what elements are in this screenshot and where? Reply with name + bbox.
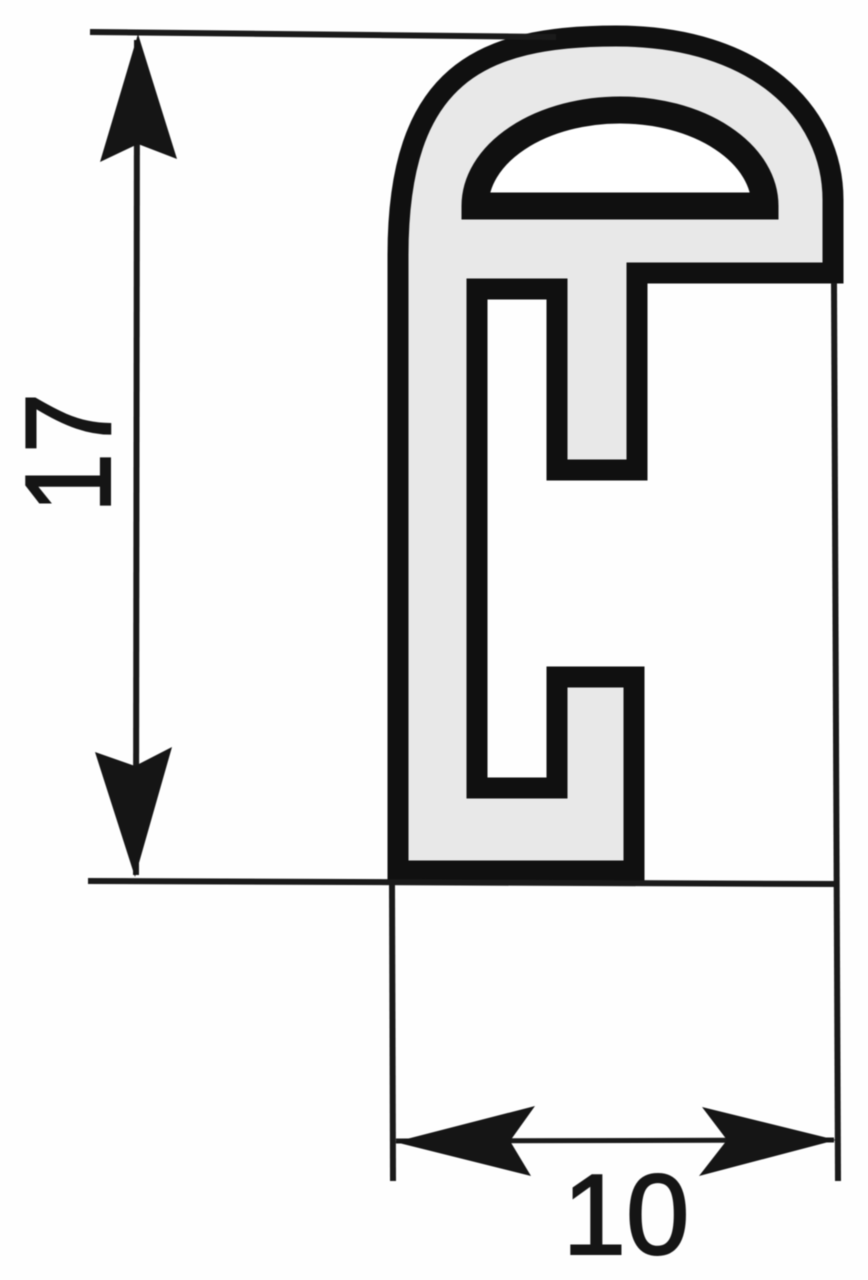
- svg-text:17: 17: [0, 393, 136, 513]
- svg-text:10: 10: [563, 1152, 690, 1279]
